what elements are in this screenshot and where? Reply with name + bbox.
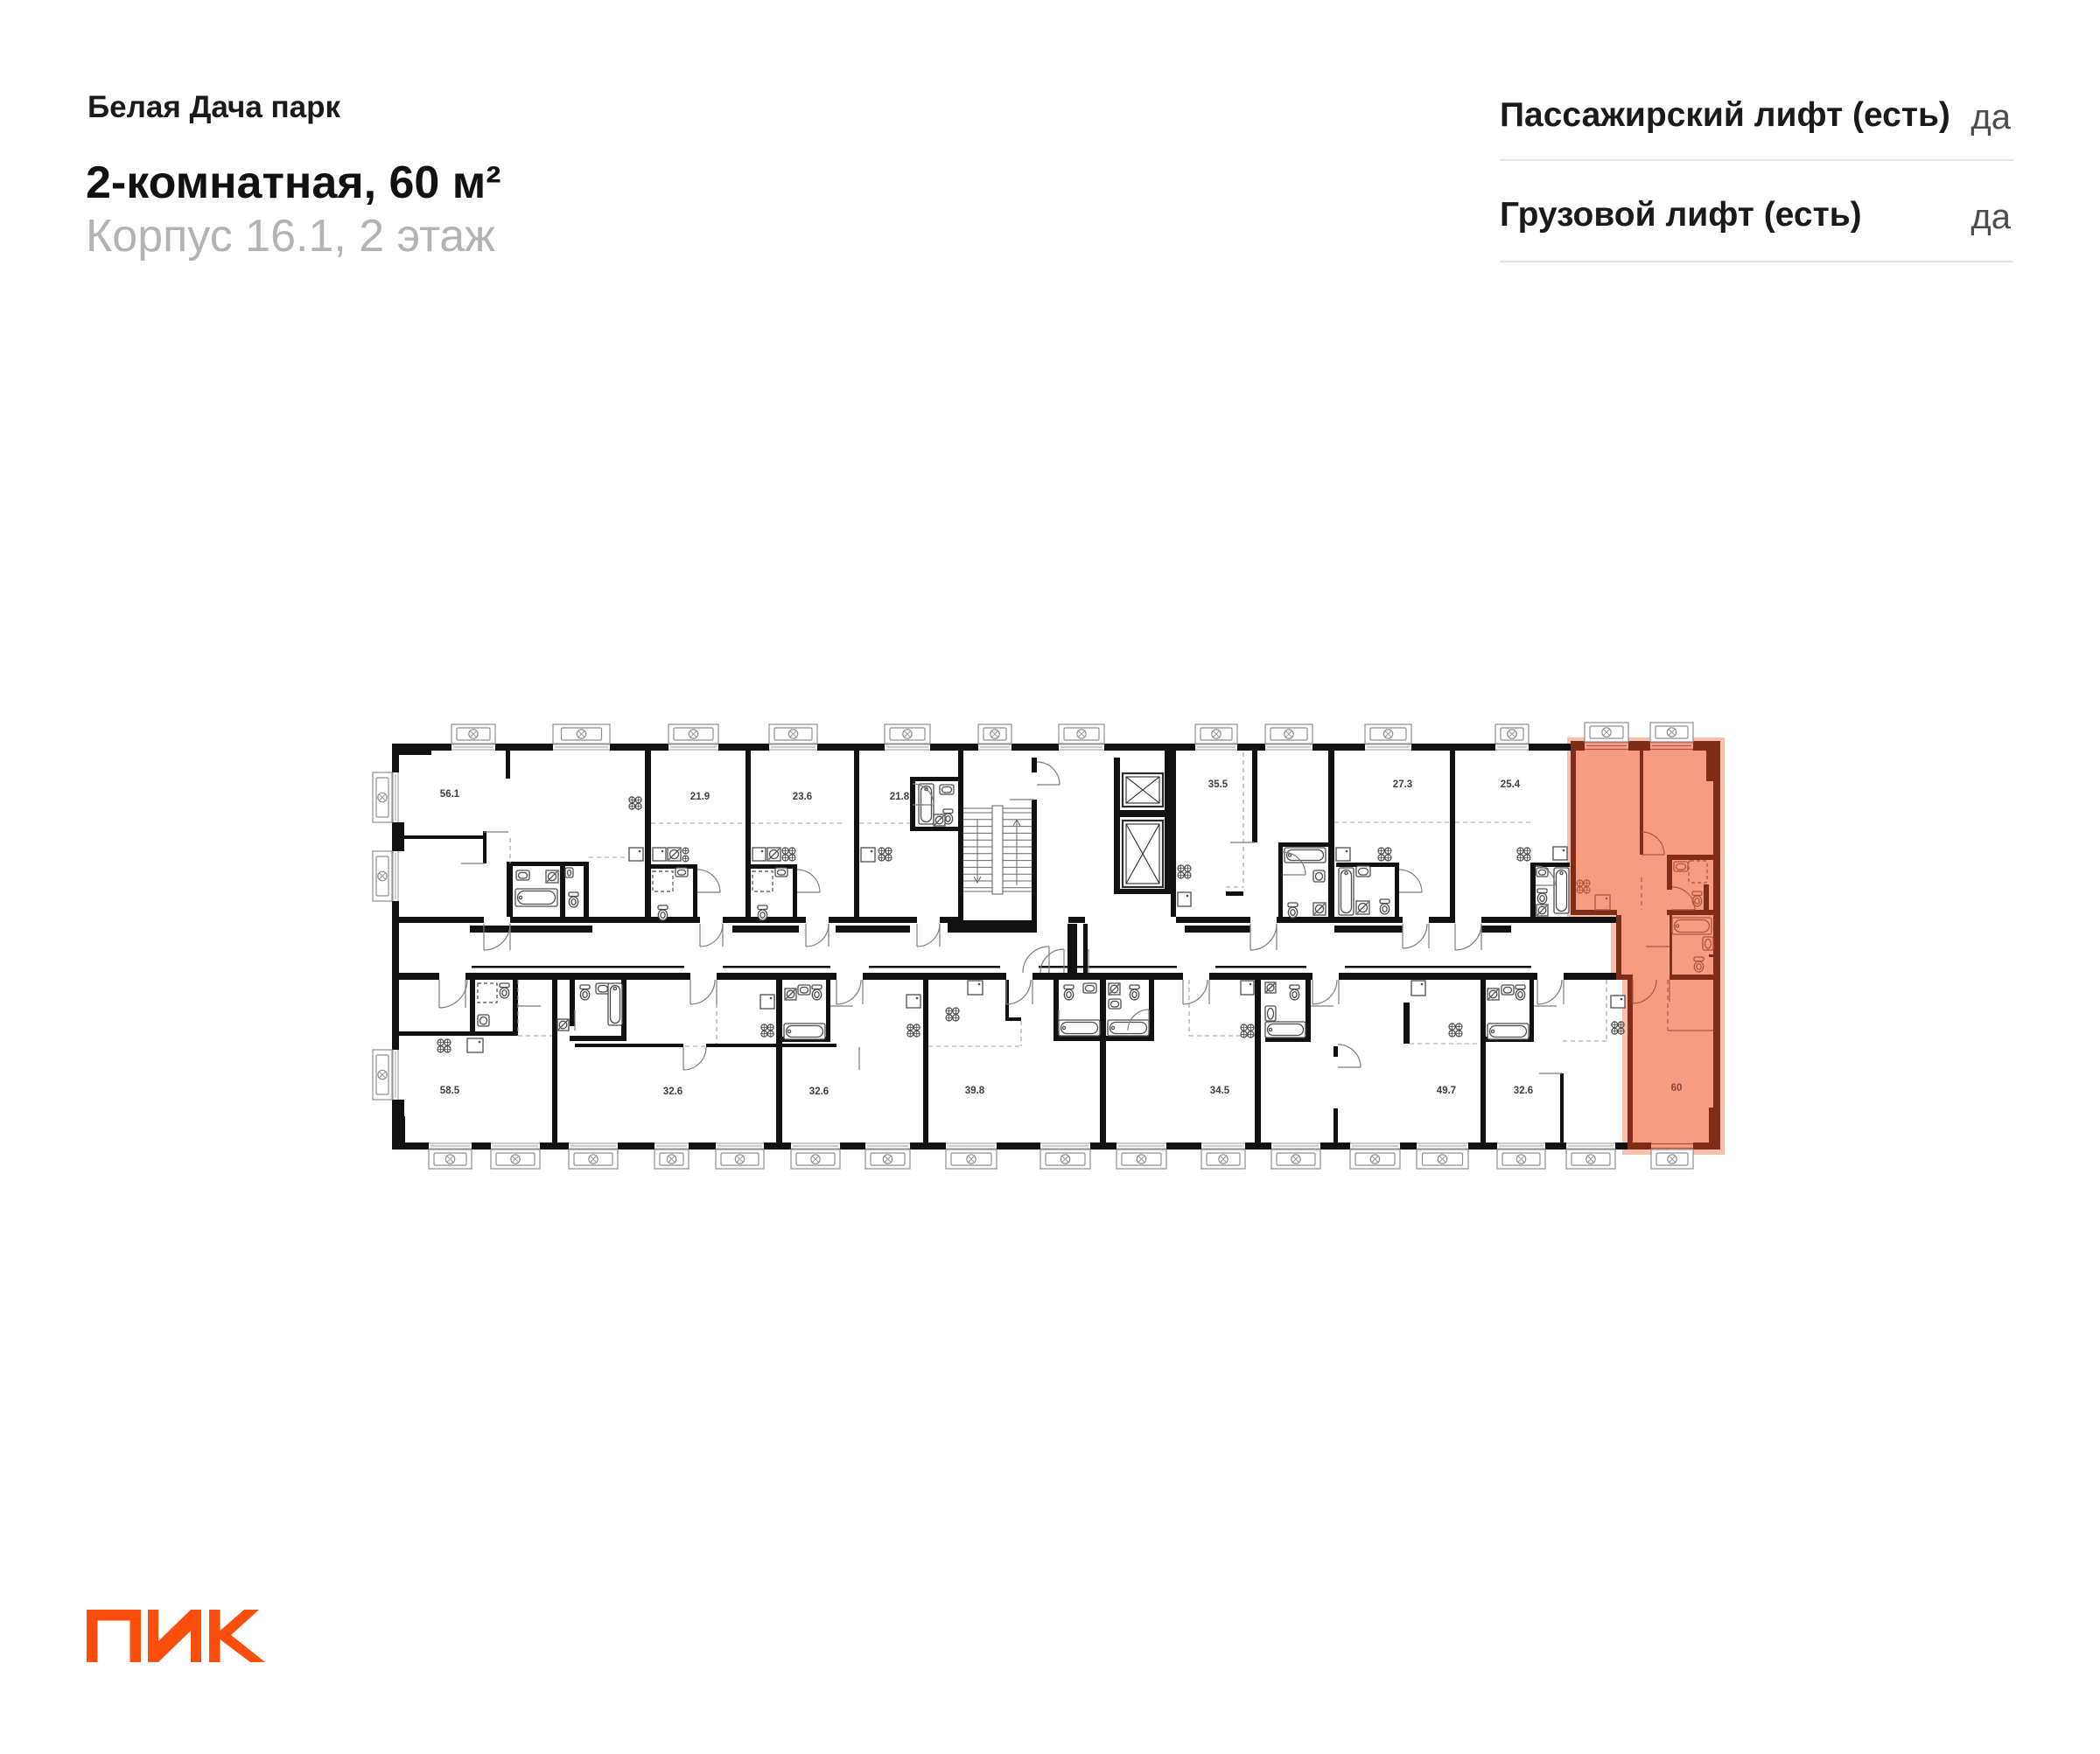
svg-text:32.6: 32.6 (663, 1087, 682, 1097)
svg-text:27.3: 27.3 (1393, 779, 1412, 790)
svg-text:32.6: 32.6 (809, 1087, 829, 1097)
svg-text:32.6: 32.6 (1514, 1086, 1533, 1096)
svg-text:39.8: 39.8 (965, 1086, 985, 1096)
svg-text:35.5: 35.5 (1208, 779, 1228, 790)
svg-text:21.9: 21.9 (690, 792, 710, 802)
svg-text:58.5: 58.5 (440, 1086, 460, 1096)
svg-text:23.6: 23.6 (793, 792, 812, 802)
svg-text:21.8: 21.8 (890, 792, 910, 802)
svg-text:56.1: 56.1 (440, 789, 460, 800)
svg-text:60: 60 (1671, 1083, 1683, 1094)
svg-text:34.5: 34.5 (1210, 1086, 1230, 1096)
svg-text:49.7: 49.7 (1437, 1086, 1456, 1096)
svg-text:25.4: 25.4 (1501, 779, 1521, 790)
